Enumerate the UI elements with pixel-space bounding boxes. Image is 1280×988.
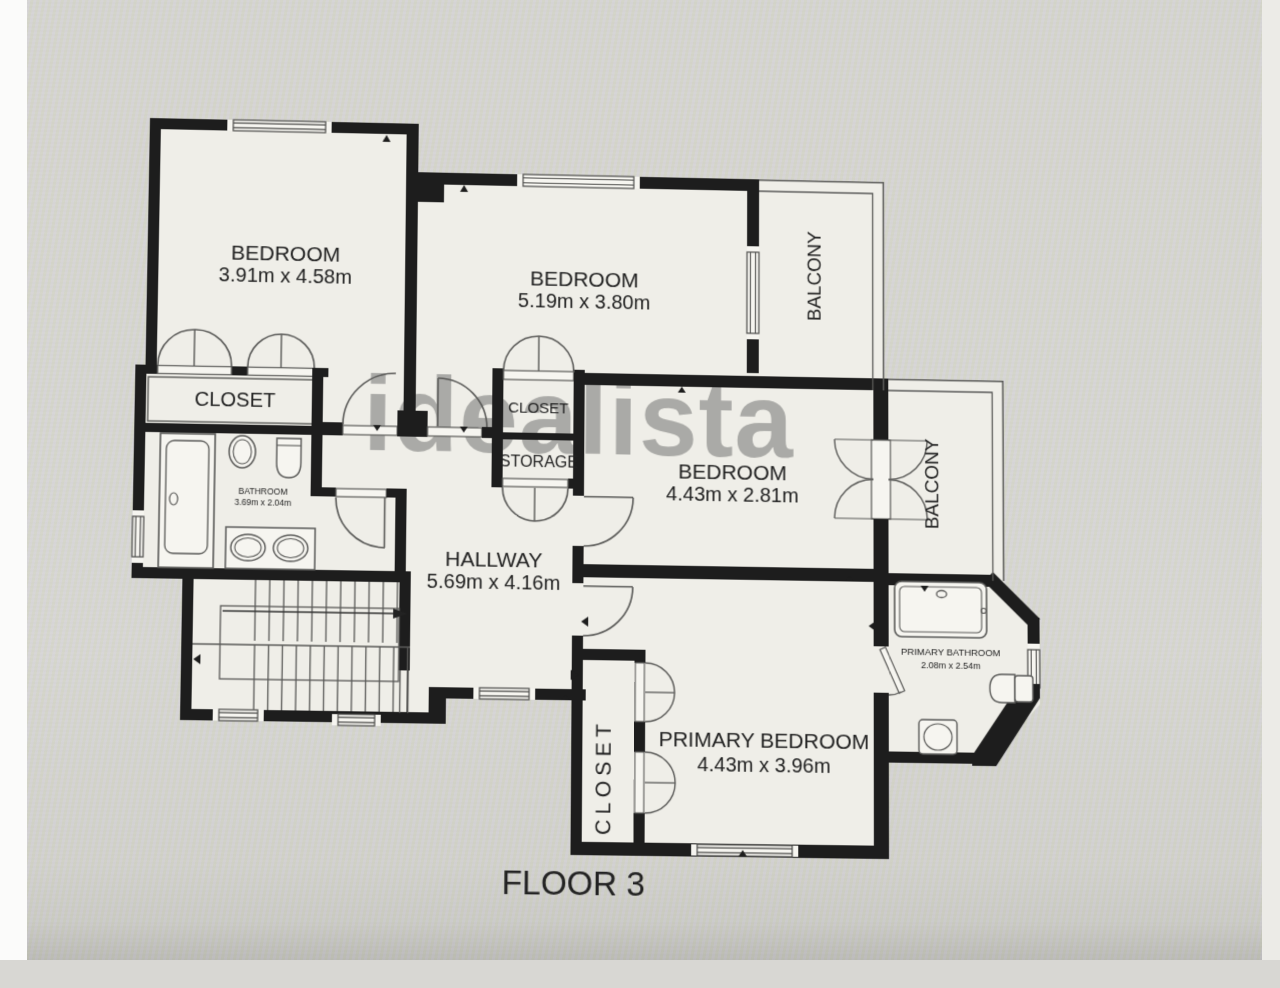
svg-text:5.69m x 4.16m: 5.69m x 4.16m [427,571,561,595]
svg-text:BEDROOM: BEDROOM [530,267,639,292]
svg-text:CLOSET: CLOSET [194,389,275,413]
svg-text:CLOSET: CLOSET [508,399,568,417]
svg-text:PRIMARY BEDROOM: PRIMARY BEDROOM [659,728,870,754]
svg-text:BALCONY: BALCONY [805,231,826,321]
svg-text:PRIMARY BATHROOM: PRIMARY BATHROOM [901,647,1001,660]
svg-text:4.43m x 3.96m: 4.43m x 3.96m [697,754,830,778]
svg-text:3.91m x 4.58m: 3.91m x 4.58m [219,264,352,289]
svg-text:2.08m x 2.54m: 2.08m x 2.54m [921,660,981,671]
svg-text:FLOOR 3: FLOOR 3 [501,863,645,903]
svg-text:BALCONY: BALCONY [922,438,943,529]
svg-text:STORAGE: STORAGE [500,453,578,471]
svg-text:BATHROOM: BATHROOM [238,486,287,497]
svg-text:3.69m x 2.04m: 3.69m x 2.04m [234,497,291,508]
svg-text:CLOSET: CLOSET [592,719,616,835]
svg-text:BEDROOM: BEDROOM [678,460,787,485]
svg-text:5.19m x 3.80m: 5.19m x 3.80m [518,290,650,315]
svg-text:HALLWAY: HALLWAY [445,548,543,573]
svg-text:4.43m x 2.81m: 4.43m x 2.81m [666,483,799,507]
svg-text:BEDROOM: BEDROOM [231,242,340,267]
